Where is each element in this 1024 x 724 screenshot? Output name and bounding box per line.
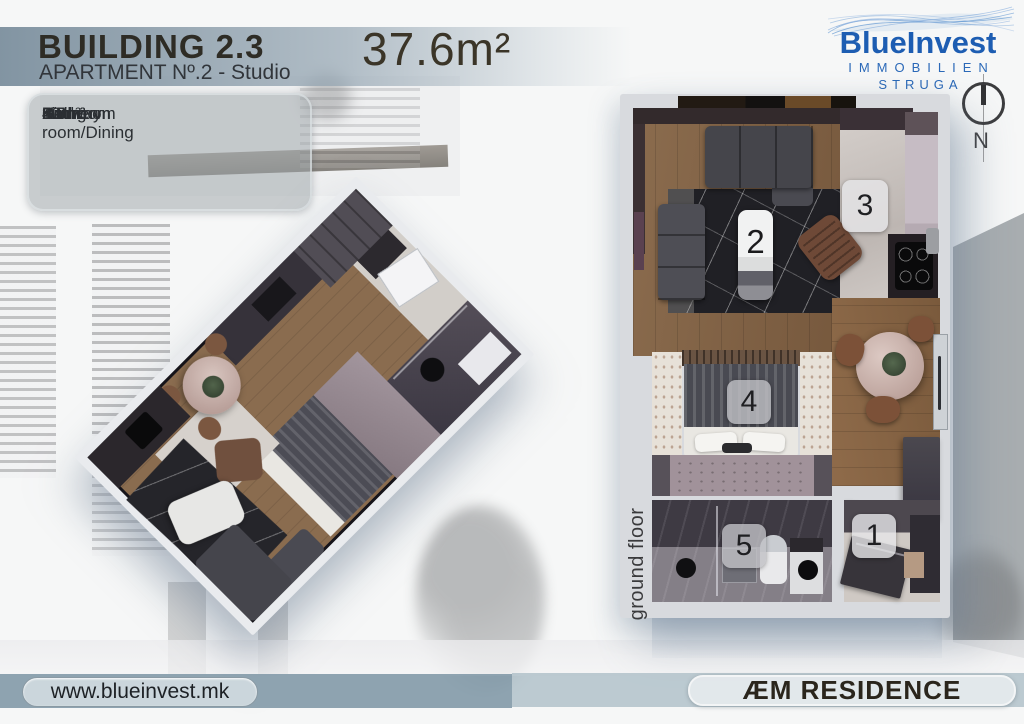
table-plant-2d xyxy=(882,352,906,376)
armchair-3d xyxy=(214,437,263,483)
compass-needle xyxy=(981,85,986,105)
room-list-panel: 1. Hallway 2.8m² 2. Living room/Dining 2… xyxy=(27,93,312,211)
dining-chair-2d xyxy=(908,316,934,342)
bathroom-shelf-2d xyxy=(790,538,823,552)
door-handle-2d xyxy=(938,356,941,410)
floor-plan-2d: 2 3 4 5 xyxy=(620,94,950,618)
ground-floor-caption: ground floor xyxy=(626,499,648,629)
page: BUILDING 2.3 APARTMENT Nº.2 - Studio 37.… xyxy=(0,0,1024,724)
room-number-bathroom: 5 xyxy=(722,524,766,568)
wall-art-2d xyxy=(634,212,644,270)
bedroom-wall-2d xyxy=(800,352,832,456)
sofa-2d xyxy=(705,126,813,188)
background-louver-window xyxy=(0,226,56,478)
bed-throw-2d xyxy=(722,443,752,453)
washer-drum-2d xyxy=(798,560,818,580)
entry-step-shadow xyxy=(652,618,942,658)
room-number-hallway: 1 xyxy=(852,514,896,558)
kitchen-wall-2d xyxy=(840,108,913,130)
hallway-box-2d xyxy=(904,552,924,578)
room-number-living: 2 xyxy=(738,223,773,261)
interior-wall-2d xyxy=(832,494,844,618)
bathroom-sink-2d xyxy=(676,558,696,578)
website-link[interactable]: www.blueinvest.mk xyxy=(22,677,258,707)
total-area: 37.6m² xyxy=(362,22,511,76)
logo-brand-text: BlueInvest xyxy=(818,25,1018,61)
room-area: 4.5m² xyxy=(42,104,92,123)
residence-name-badge: ÆM RESIDENCE xyxy=(688,675,1016,706)
room-number-kitchen: 3 xyxy=(842,180,888,232)
apartment-subtitle: APARTMENT Nº.2 - Studio xyxy=(39,61,291,85)
logo-immobilien-text: IMMOBILIEN xyxy=(818,60,1018,75)
shower-glass-2d xyxy=(716,506,718,596)
bedroom-wardrobe-2d xyxy=(652,455,832,496)
bedroom-wall-2d xyxy=(652,352,682,456)
kitchen-sink-2d xyxy=(926,228,939,254)
dining-chair-2d xyxy=(866,396,900,423)
room-number-bedroom: 4 xyxy=(727,380,771,424)
compass-north-label: N xyxy=(973,128,989,154)
sofa-2d xyxy=(658,204,705,300)
